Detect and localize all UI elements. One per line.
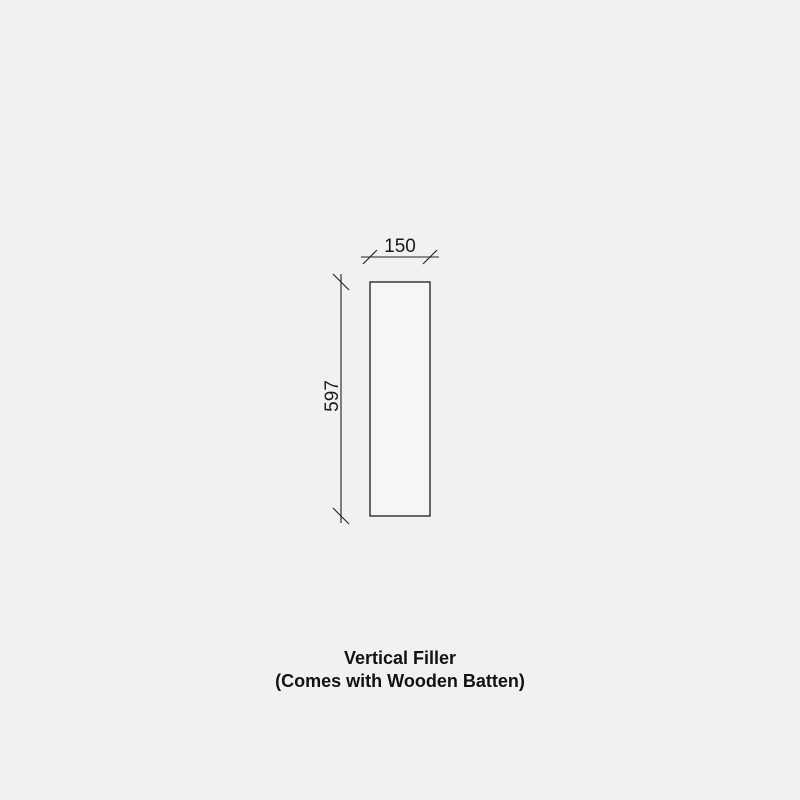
height-dimension: 597 (322, 274, 349, 524)
drawing-canvas: 150 597 Vertical Filler (Comes with Wood… (0, 0, 800, 800)
width-dimension-label: 150 (384, 236, 416, 257)
height-dimension-label: 597 (322, 380, 343, 412)
caption-line1: Vertical Filler (0, 647, 800, 670)
width-dimension: 150 (361, 236, 439, 264)
caption-line2: (Comes with Wooden Batten) (0, 670, 800, 693)
caption: Vertical Filler (Comes with Wooden Batte… (0, 647, 800, 693)
filler-panel-outline (370, 282, 430, 516)
